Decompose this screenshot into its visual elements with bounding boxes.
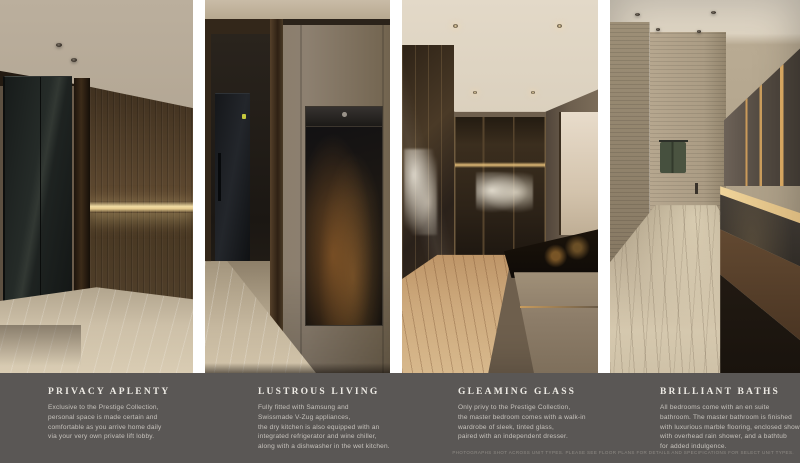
caption-title: LUSTROUS LIVING: [258, 387, 410, 397]
photo-private-lift-lobby: [0, 0, 193, 373]
refrigerator-handle: [218, 153, 221, 201]
energy-label: [242, 114, 246, 119]
ceiling-spotlight: [56, 43, 62, 47]
caption-band: PRIVACY APLENTY Exclusive to the Prestig…: [0, 373, 800, 463]
lift-doors: [3, 76, 72, 318]
backlit-niches: [724, 48, 800, 186]
wardrobe-shelf-light: [455, 162, 545, 168]
wine-chiller: [305, 106, 383, 326]
photo-walk-in-wardrobe: [402, 0, 598, 373]
vanity-mirror: [724, 48, 800, 186]
floor-shadow: [205, 363, 390, 373]
dresser-brass-trim: [520, 306, 598, 308]
wall-switch: [695, 183, 698, 194]
caption-title: GLEAMING GLASS: [458, 387, 610, 397]
lift-door-frame: [74, 78, 89, 322]
caption-gleaming-glass: GLEAMING GLASS Only privy to the Prestig…: [458, 387, 610, 442]
appliance-logo: [342, 112, 347, 117]
floor-shadow: [0, 325, 81, 373]
hanging-clothes: [404, 149, 437, 235]
ceiling-spotlight: [711, 11, 716, 14]
caption-title: BRILLIANT BATHS: [660, 387, 800, 397]
disclaimer-text: PHOTOGRAPHS SHOT ACROSS UNIT TYPES. PLEA…: [452, 450, 794, 455]
vanity-assembly: [720, 168, 800, 373]
wood-panel-wall: [83, 67, 193, 321]
caption-brilliant-baths: BRILLIANT BATHS All bedrooms come with a…: [660, 387, 800, 452]
caption-body: Fully fitted with Samsung and Swissmade …: [258, 403, 410, 452]
photo-master-bathroom: [610, 0, 800, 373]
brochure-page: PRIVACY APLENTY Exclusive to the Prestig…: [0, 0, 800, 463]
hanging-jackets: [476, 172, 533, 217]
dresser-drawers: [514, 272, 598, 373]
ceiling-spotlight: [656, 28, 660, 31]
cove-light: [89, 201, 193, 213]
caption-body: Exclusive to the Prestige Collection, pe…: [48, 403, 196, 442]
caption-body: Only privy to the Prestige Collection, t…: [458, 403, 610, 442]
caption-lustrous-living: LUSTROUS LIVING Fully fitted with Samsun…: [258, 387, 410, 452]
ceiling: [205, 0, 390, 19]
ceiling-spotlight: [635, 13, 640, 16]
caption-privacy-aplenty: PRIVACY APLENTY Exclusive to the Prestig…: [48, 387, 196, 442]
caption-title: PRIVACY APLENTY: [48, 387, 196, 397]
caption-body: All bedrooms come with an en suite bathr…: [660, 403, 800, 452]
towels: [660, 142, 686, 174]
bedroom-opening: [559, 112, 598, 235]
photo-dry-kitchen: [205, 0, 390, 373]
